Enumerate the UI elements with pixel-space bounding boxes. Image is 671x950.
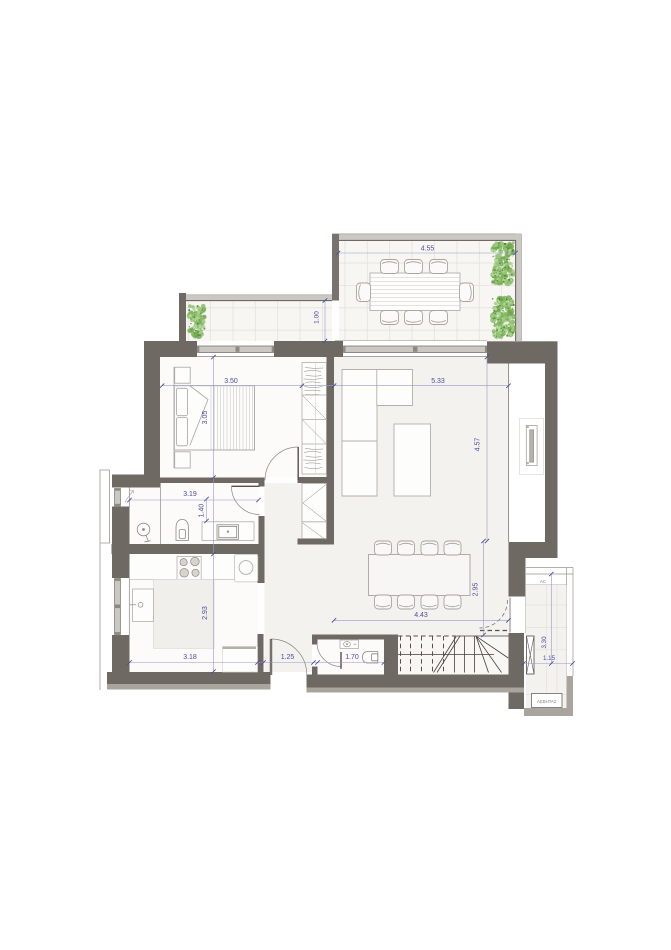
svg-text:1.40: 1.40 bbox=[199, 504, 206, 518]
svg-text:3.30: 3.30 bbox=[541, 636, 548, 649]
svg-text:1.00: 1.00 bbox=[314, 311, 321, 324]
svg-text:1.15: 1.15 bbox=[543, 655, 556, 662]
svg-text:1.25: 1.25 bbox=[281, 654, 295, 661]
svg-text:4.55: 4.55 bbox=[421, 246, 435, 253]
svg-text:2.95: 2.95 bbox=[473, 583, 480, 597]
svg-text:5.33: 5.33 bbox=[431, 378, 445, 385]
svg-text:4.43: 4.43 bbox=[414, 612, 428, 619]
svg-text:ΛΕΒΗΤΑΣ: ΛΕΒΗΤΑΣ bbox=[537, 699, 557, 704]
svg-text:AC: AC bbox=[540, 579, 547, 584]
svg-text:3.18: 3.18 bbox=[183, 654, 197, 661]
svg-text:3.05: 3.05 bbox=[202, 411, 209, 425]
svg-text:3.50: 3.50 bbox=[224, 378, 238, 385]
svg-text:3.19: 3.19 bbox=[183, 491, 197, 498]
svg-text:2.93: 2.93 bbox=[202, 606, 209, 620]
svg-text:4.57: 4.57 bbox=[474, 438, 481, 452]
svg-text:1.70: 1.70 bbox=[345, 654, 359, 661]
